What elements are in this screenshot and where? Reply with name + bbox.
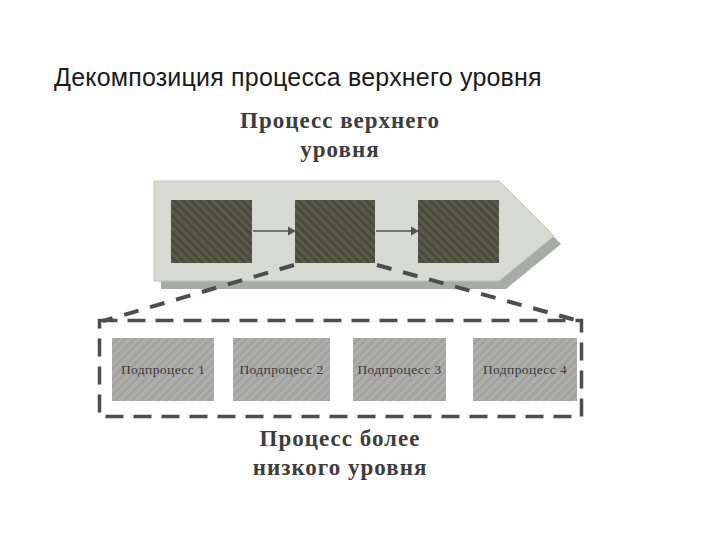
subprocess-box-4: Подпроцесс 4 bbox=[473, 338, 577, 401]
subprocess-label-2: Подпроцесс 2 bbox=[239, 362, 323, 378]
lower-process-label: Процесс более низкого уровня bbox=[215, 424, 465, 482]
subprocess-box-1: Подпроцесс 1 bbox=[112, 338, 214, 401]
top-process-step-3 bbox=[418, 200, 499, 263]
subprocess-label-1: Подпроцесс 1 bbox=[121, 362, 205, 378]
subprocess-label-3: Подпроцесс 3 bbox=[357, 362, 441, 378]
subprocess-box-3: Подпроцесс 3 bbox=[353, 338, 446, 401]
slide-canvas: Декомпозиция процесса верхнего уровня Пр… bbox=[0, 0, 720, 540]
top-process-step-1 bbox=[171, 200, 252, 263]
subprocess-box-2: Подпроцесс 2 bbox=[233, 338, 330, 401]
subprocess-label-4: Подпроцесс 4 bbox=[483, 362, 567, 378]
top-process-step-2 bbox=[295, 200, 375, 263]
